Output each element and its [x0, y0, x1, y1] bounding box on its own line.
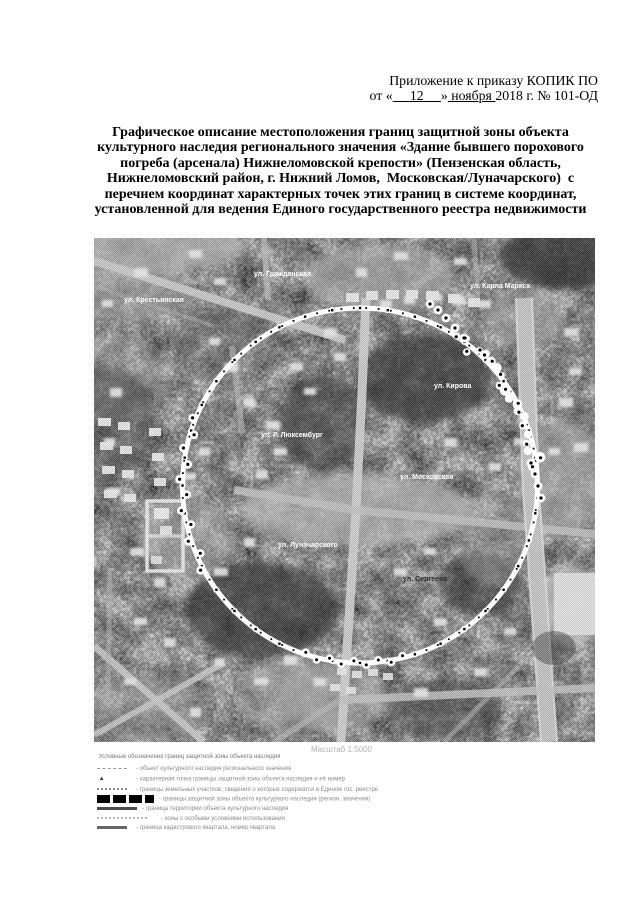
svg-text:ул. Р. Люксембург: ул. Р. Люксембург [261, 431, 323, 439]
svg-text:ул. Гражданская: ул. Гражданская [254, 271, 311, 278]
svg-text:ул. Сергеева: ул. Сергеева [403, 576, 447, 583]
svg-text:ул. Карла Маркса: ул. Карла Маркса [470, 283, 530, 290]
svg-text:ул. Крестьянская: ул. Крестьянская [124, 297, 184, 304]
svg-text:ул. Кирова: ул. Кирова [434, 383, 471, 390]
svg-text:ул. Московская: ул. Московская [400, 474, 453, 481]
svg-text:ул. Луначарского: ул. Луначарского [278, 542, 338, 549]
